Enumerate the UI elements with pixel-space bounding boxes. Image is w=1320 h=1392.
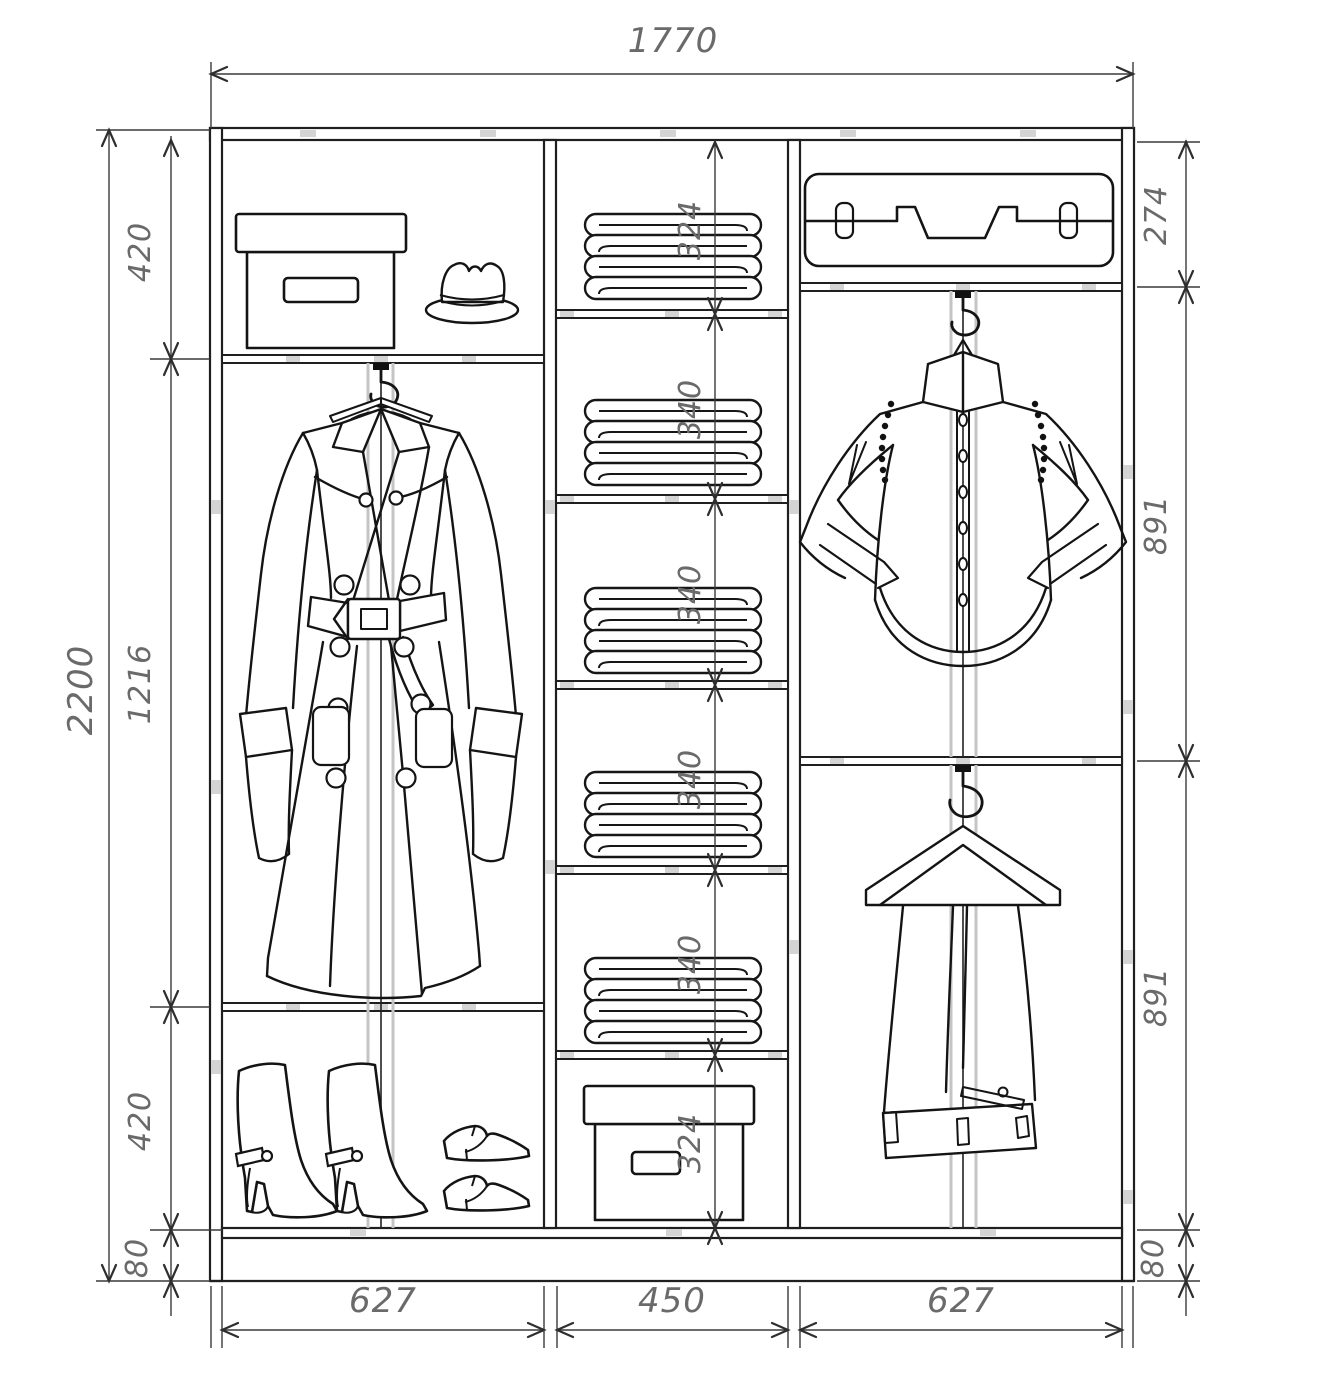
dim-left-top: 420 [123,222,158,282]
coat-pocket-right [416,709,452,767]
wardrobe-drawing-page: 1770 2200 420 1216 420 80 324 340 340 34… [0,0,1320,1392]
dim-width-left: 627 [349,1281,417,1321]
suitcase [805,174,1113,266]
wardrobe-drawing: 1770 2200 420 1216 420 80 324 340 340 34… [0,0,1320,1392]
left-side-panel [210,128,222,1281]
dim-overall-width: 1770 [628,21,719,61]
partition-left [544,140,556,1228]
dim-right-plinth: 80 [1136,1238,1171,1278]
dim-shelf-4: 340 [673,749,708,809]
folded-linen-stacks [585,214,761,1043]
dim-shelf-2: 340 [673,379,708,439]
dim-width-right: 627 [927,1281,995,1321]
dim-left-middle: 1216 [123,644,158,724]
partition-right [788,140,800,1228]
coat-pocket-left [313,707,349,765]
dim-right-upper: 891 [1139,495,1174,555]
dim-shelf-3: 340 [673,564,708,624]
dim-shelf-5: 340 [673,934,708,994]
dim-shelf-1: 324 [673,200,708,260]
dim-right-top: 274 [1139,185,1174,245]
storage-box-bottom [584,1086,754,1220]
boots-pair [236,1064,427,1218]
dim-overall-height: 2200 [61,645,101,736]
dress-shoes-pair [444,1126,529,1210]
dim-left-bottom: 420 [123,1091,158,1151]
hat [426,263,518,323]
storage-box-top [236,214,406,348]
dim-width-middle: 450 [638,1281,706,1321]
dim-shelf-6: 324 [673,1113,708,1173]
dim-left-plinth: 80 [120,1238,155,1278]
dim-right-lower: 891 [1139,967,1174,1027]
trouser-waistband [883,1104,1036,1158]
